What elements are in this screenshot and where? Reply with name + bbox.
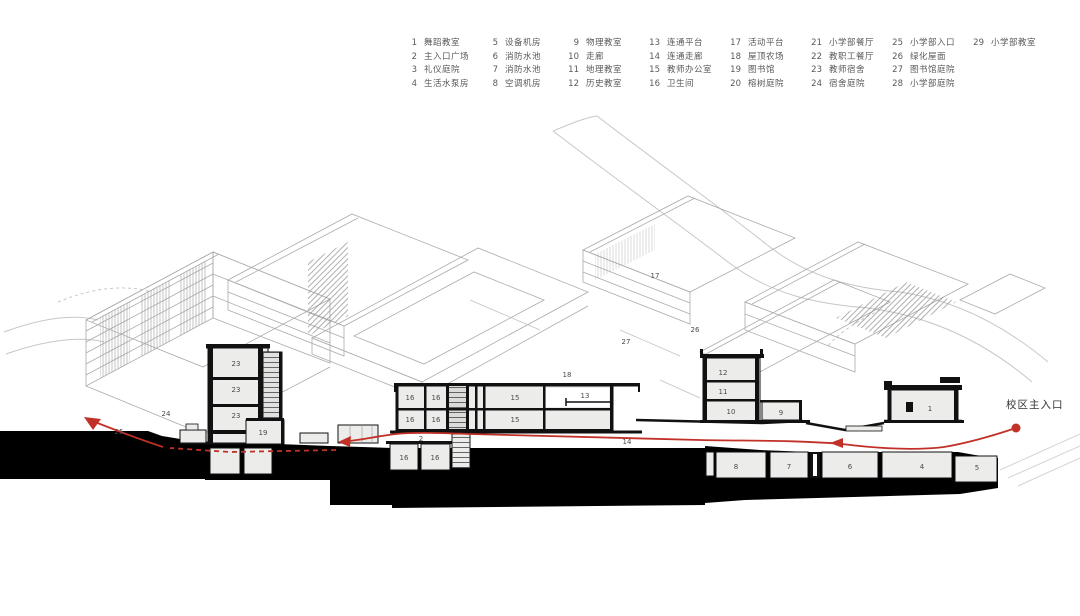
room-number-18: 18	[563, 371, 572, 379]
legend-item-number: 4	[404, 79, 417, 89]
legend-item-number: 27	[890, 65, 903, 75]
legend-column: 9物理教室10走廊11地理教室12历史教室	[566, 36, 647, 90]
legend-item-label: 活动平台	[748, 36, 784, 48]
legend-item-number: 3	[404, 65, 417, 75]
legend-item-22: 22教职工餐厅	[809, 50, 890, 64]
legend-item-number: 23	[809, 65, 822, 75]
legend-item-label: 连通走廊	[667, 50, 703, 62]
legend-item-number: 1	[404, 38, 417, 48]
legend-item-number: 8	[485, 79, 498, 89]
legend-item-label: 消防水池	[505, 63, 541, 75]
legend-item-label: 绿化屋面	[910, 50, 946, 62]
room-number-15: 15	[511, 394, 520, 402]
legend-item-number: 6	[485, 52, 498, 62]
room-number-25: 25	[115, 428, 124, 436]
legend-column: 25小学部入口26绿化屋面27图书馆庭院28小学部庭院	[890, 36, 971, 90]
legend-item-label: 走廊	[586, 50, 604, 62]
room-number-4: 4	[920, 463, 925, 471]
room-number-23: 23	[232, 360, 241, 368]
legend-item-label: 设备机房	[505, 36, 541, 48]
room-number-24: 24	[162, 410, 171, 418]
legend-item-label: 屋顶农场	[748, 50, 784, 62]
route-arrowhead-mid	[830, 438, 843, 448]
legend-item-4: 4生活水泵房	[404, 77, 485, 91]
legend-item-label: 教职工餐厅	[829, 50, 874, 62]
room-number-13: 13	[581, 392, 590, 400]
entrance-dot	[1012, 424, 1021, 433]
legend-column: 13连通平台14连通走廊15教师办公室16卫生间	[647, 36, 728, 90]
legend-item-number: 29	[971, 38, 984, 48]
room-number-12: 12	[719, 369, 728, 377]
legend-item-label: 教师办公室	[667, 63, 712, 75]
legend-item-label: 卫生间	[667, 77, 694, 89]
legend-item-number: 19	[728, 65, 741, 75]
legend-item-label: 图书馆	[748, 63, 775, 75]
legend-item-9: 9物理教室	[566, 36, 647, 50]
legend-item-6: 6消防水池	[485, 50, 566, 64]
legend-item-label: 消防水池	[505, 50, 541, 62]
legend-item-number: 20	[728, 79, 741, 89]
legend-item-label: 舞蹈教室	[424, 36, 460, 48]
legend-item-label: 主入口广场	[424, 50, 469, 62]
room-number-10: 10	[727, 408, 736, 416]
room-number-5: 5	[975, 464, 979, 472]
room-number-27: 27	[622, 338, 631, 346]
legend-item-number: 22	[809, 52, 822, 62]
legend-item-29: 29小学部教室	[971, 36, 1036, 50]
architectural-sheet: 2425232323192161615161615131817262714161…	[0, 0, 1080, 616]
room-number-23: 23	[232, 386, 241, 394]
legend: 1舞蹈教室2主入口广场3礼仪庭院4生活水泵房5设备机房6消防水池7消防水池8空调…	[404, 36, 1036, 90]
legend-item-number: 16	[647, 79, 660, 89]
legend-item-27: 27图书馆庭院	[890, 63, 971, 77]
room-number-9: 9	[779, 409, 783, 417]
entrance-annotation: 校区主入口	[1006, 398, 1064, 411]
room-number-7: 7	[787, 463, 791, 471]
legend-column: 1舞蹈教室2主入口广场3礼仪庭院4生活水泵房	[404, 36, 485, 90]
room-number-19: 19	[259, 429, 268, 437]
legend-item-1: 1舞蹈教室	[404, 36, 485, 50]
legend-item-number: 2	[404, 52, 417, 62]
room-number-6: 6	[848, 463, 853, 471]
room-number-16: 16	[432, 394, 441, 402]
legend-item-5: 5设备机房	[485, 36, 566, 50]
room-number-16: 16	[406, 394, 415, 402]
legend-item-2: 2主入口广场	[404, 50, 485, 64]
legend-item-number: 24	[809, 79, 822, 89]
legend-item-label: 教师宿舍	[829, 63, 865, 75]
room-number-11: 11	[719, 388, 728, 396]
legend-item-7: 7消防水池	[485, 63, 566, 77]
legend-item-20: 20榕树庭院	[728, 77, 809, 91]
legend-item-label: 宿舍庭院	[829, 77, 865, 89]
legend-item-18: 18屋顶农场	[728, 50, 809, 64]
legend-column: 21小学部餐厅22教职工餐厅23教师宿舍24宿舍庭院	[809, 36, 890, 90]
room-number-16: 16	[431, 454, 440, 462]
legend-item-label: 礼仪庭院	[424, 63, 460, 75]
legend-item-25: 25小学部入口	[890, 36, 971, 50]
room-number-16: 16	[432, 416, 441, 424]
legend-item-number: 9	[566, 38, 579, 48]
legend-item-11: 11地理教室	[566, 63, 647, 77]
legend-item-28: 28小学部庭院	[890, 77, 971, 91]
legend-item-label: 小学部入口	[910, 36, 955, 48]
room-number-8: 8	[734, 463, 738, 471]
room-number-23: 23	[232, 412, 241, 420]
legend-item-label: 地理教室	[586, 63, 622, 75]
legend-item-label: 历史教室	[586, 77, 622, 89]
legend-item-12: 12历史教室	[566, 77, 647, 91]
legend-item-label: 小学部教室	[991, 36, 1036, 48]
legend-item-number: 26	[890, 52, 903, 62]
legend-item-24: 24宿舍庭院	[809, 77, 890, 91]
legend-item-number: 11	[566, 65, 579, 75]
legend-item-number: 15	[647, 65, 660, 75]
room-number-17: 17	[651, 272, 660, 280]
legend-item-17: 17活动平台	[728, 36, 809, 50]
legend-item-16: 16卫生间	[647, 77, 728, 91]
legend-item-label: 小学部餐厅	[829, 36, 874, 48]
room-number-14: 14	[623, 438, 632, 446]
legend-item-number: 5	[485, 38, 498, 48]
legend-item-label: 榕树庭院	[748, 77, 784, 89]
legend-item-3: 3礼仪庭院	[404, 63, 485, 77]
legend-item-13: 13连通平台	[647, 36, 728, 50]
room-number-16: 16	[406, 416, 415, 424]
room-number-1: 1	[928, 405, 932, 413]
legend-item-number: 13	[647, 38, 660, 48]
legend-item-19: 19图书馆	[728, 63, 809, 77]
legend-item-21: 21小学部餐厅	[809, 36, 890, 50]
legend-item-number: 12	[566, 79, 579, 89]
legend-column: 5设备机房6消防水池7消防水池8空调机房	[485, 36, 566, 90]
legend-item-14: 14连通走廊	[647, 50, 728, 64]
legend-item-number: 21	[809, 38, 822, 48]
legend-item-10: 10走廊	[566, 50, 647, 64]
legend-item-number: 17	[728, 38, 741, 48]
legend-item-23: 23教师宿舍	[809, 63, 890, 77]
legend-item-number: 28	[890, 79, 903, 89]
room-number-15: 15	[511, 416, 520, 424]
legend-item-number: 25	[890, 38, 903, 48]
legend-item-label: 图书馆庭院	[910, 63, 955, 75]
legend-item-26: 26绿化屋面	[890, 50, 971, 64]
legend-item-8: 8空调机房	[485, 77, 566, 91]
legend-item-label: 连通平台	[667, 36, 703, 48]
legend-item-number: 18	[728, 52, 741, 62]
legend-item-label: 生活水泵房	[424, 77, 469, 89]
legend-item-number: 14	[647, 52, 660, 62]
legend-column: 29小学部教室	[971, 36, 1036, 90]
sectional-axonometric-drawing: 2425232323192161615161615131817262714161…	[0, 0, 1080, 616]
legend-item-label: 空调机房	[505, 77, 541, 89]
legend-item-15: 15教师办公室	[647, 63, 728, 77]
room-number-26: 26	[691, 326, 700, 334]
legend-item-number: 10	[566, 52, 579, 62]
legend-item-label: 物理教室	[586, 36, 622, 48]
room-number-16: 16	[400, 454, 409, 462]
room-number-2: 2	[419, 435, 423, 443]
legend-column: 17活动平台18屋顶农场19图书馆20榕树庭院	[728, 36, 809, 90]
legend-item-label: 小学部庭院	[910, 77, 955, 89]
legend-item-number: 7	[485, 65, 498, 75]
